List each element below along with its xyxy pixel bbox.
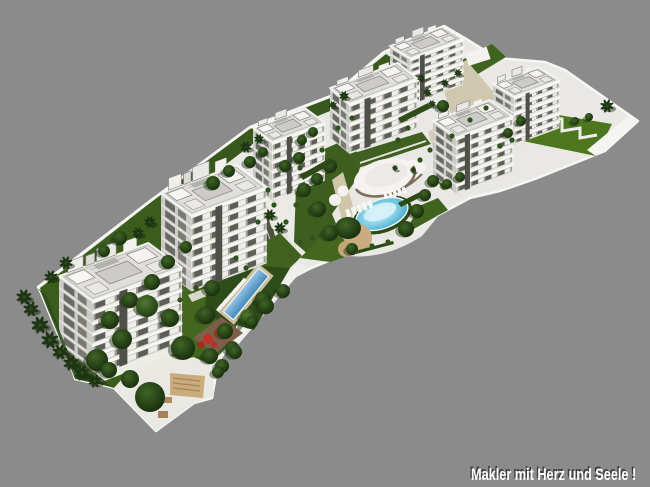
svg-text:Makler mit Herz und Seele !: Makler mit Herz und Seele ! — [471, 467, 636, 485]
